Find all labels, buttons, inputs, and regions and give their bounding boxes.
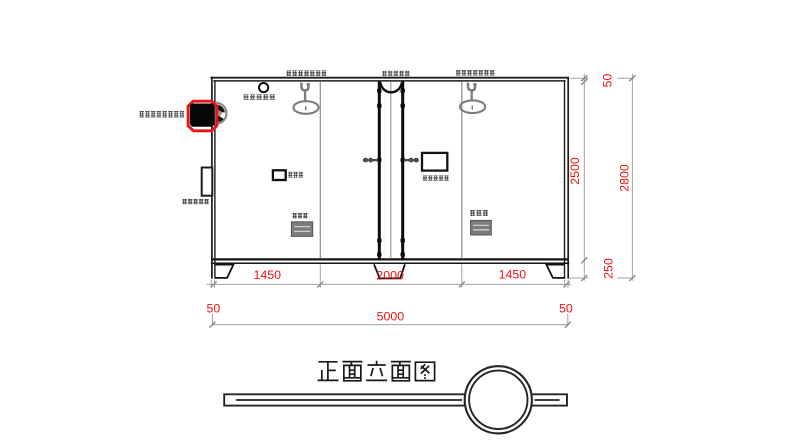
svg-text:5000: 5000 [377, 310, 405, 324]
svg-text:2800: 2800 [618, 164, 632, 192]
svg-text:50: 50 [601, 74, 615, 88]
svg-text:1450: 1450 [254, 268, 282, 282]
svg-text:50: 50 [559, 302, 573, 316]
svg-text:2500: 2500 [568, 157, 582, 185]
svg-text:50: 50 [207, 302, 221, 316]
svg-text:250: 250 [601, 258, 615, 279]
svg-text:1450: 1450 [499, 267, 527, 281]
svg-text:2000: 2000 [376, 269, 404, 283]
